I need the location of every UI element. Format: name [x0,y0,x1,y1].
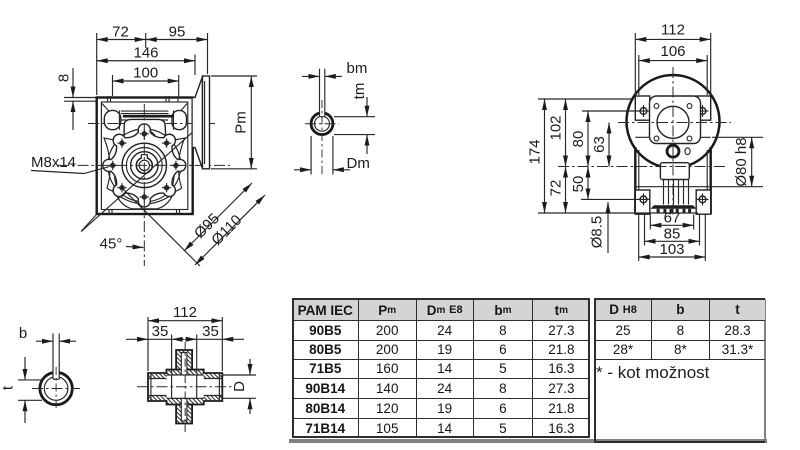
svg-text:45°: 45° [100,236,123,253]
svg-text:85: 85 [664,225,681,242]
svg-text:Ø80 h8: Ø80 h8 [733,137,750,186]
svg-text:72: 72 [112,24,129,41]
svg-text:Pm: Pm [233,111,250,134]
svg-text:103: 103 [659,241,684,258]
svg-text:Ø8.5: Ø8.5 [589,216,606,249]
svg-text:146: 146 [133,45,158,62]
svg-text:100: 100 [133,65,158,82]
svg-text:35: 35 [152,323,169,340]
svg-text:95: 95 [169,24,186,41]
svg-text:112: 112 [173,304,197,321]
svg-text:63: 63 [591,136,608,153]
svg-text:67: 67 [664,209,681,226]
svg-text:50: 50 [570,176,587,193]
svg-text:174: 174 [527,139,544,164]
svg-text:106: 106 [660,43,685,60]
svg-text:80: 80 [570,131,587,148]
svg-text:tm: tm [351,83,368,100]
svg-text:Dm: Dm [347,155,370,172]
svg-text:112: 112 [661,22,685,39]
svg-text:35: 35 [202,323,219,340]
svg-text:b: b [19,325,27,342]
svg-text:t: t [0,385,17,390]
svg-text:M8x14: M8x14 [31,154,76,171]
svg-text:bm: bm [347,60,368,77]
svg-text:D: D [231,381,248,392]
svg-text:72: 72 [548,180,565,197]
svg-text:8: 8 [56,74,73,82]
svg-text:102: 102 [548,115,565,140]
